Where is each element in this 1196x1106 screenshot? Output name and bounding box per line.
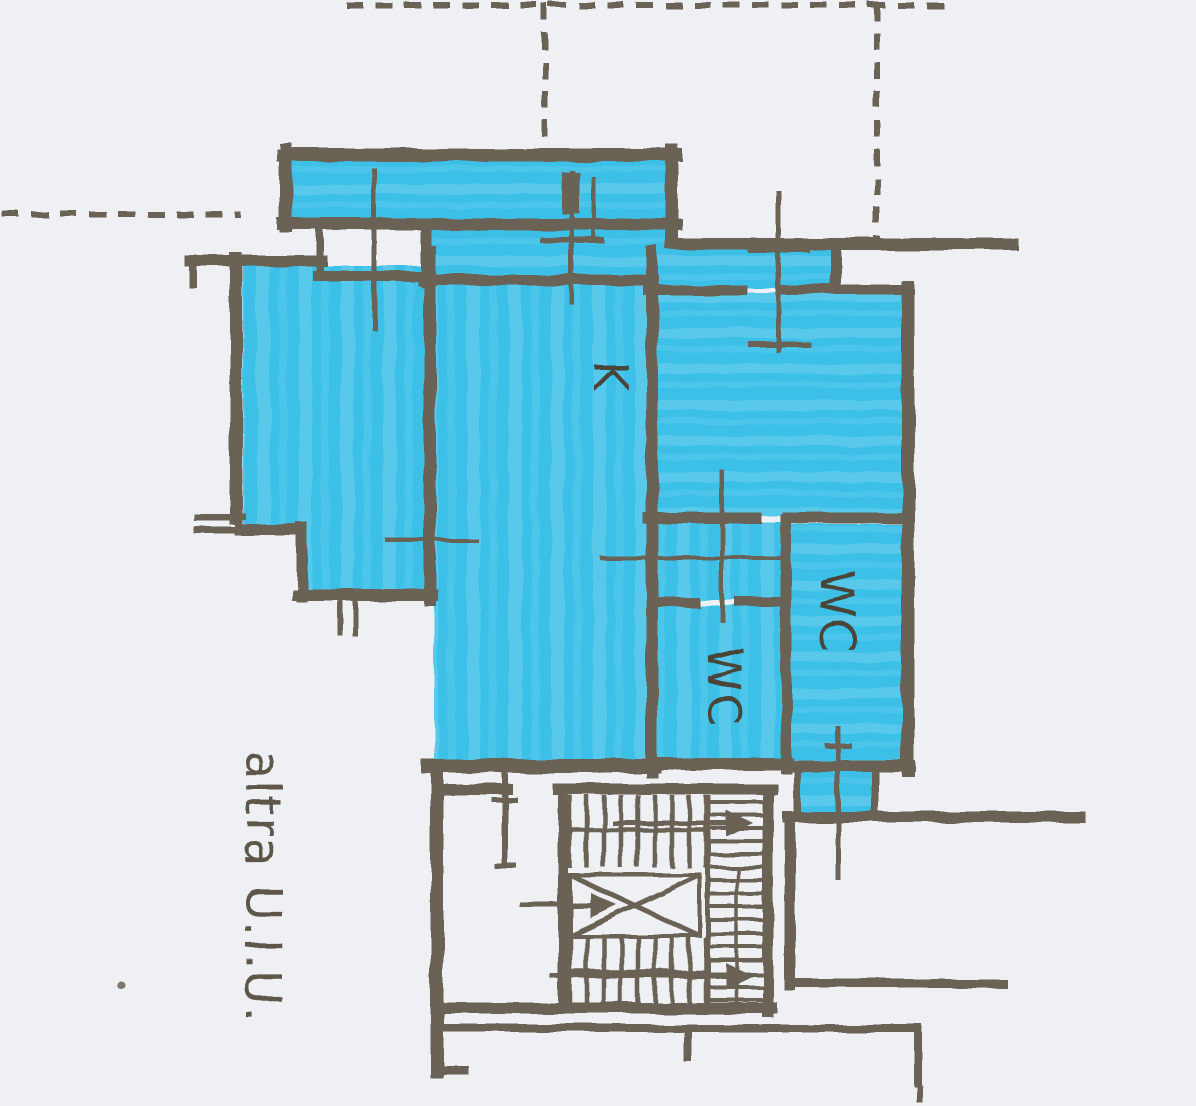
stair-treads-lower xyxy=(568,938,708,1006)
label-wc-right: WC xyxy=(808,570,864,653)
floor-plan-scan: K WC WC altra U.I.U. xyxy=(0,0,1196,1106)
label-adjacent-unit: altra U.I.U. xyxy=(234,750,291,1024)
label-kitchen: K xyxy=(583,360,637,392)
label-wc-center: WC xyxy=(696,646,751,727)
stair-treads-upper xyxy=(568,795,708,868)
ink-speck xyxy=(118,982,126,990)
